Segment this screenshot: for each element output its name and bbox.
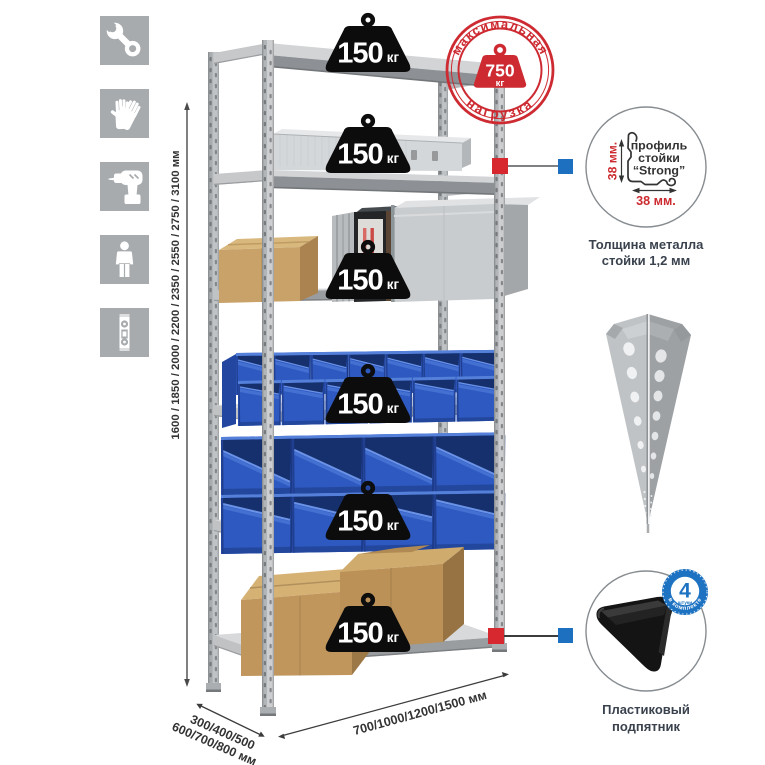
svg-text:подпятник: подпятник (612, 719, 681, 734)
svg-text:38 мм.: 38 мм. (636, 194, 676, 208)
svg-text:стойки 1,2 мм: стойки 1,2 мм (602, 253, 690, 268)
svg-text:кг: кг (387, 630, 400, 645)
svg-text:“Strong”: “Strong” (633, 164, 685, 178)
svg-text:150: 150 (337, 389, 382, 421)
svg-text:кг: кг (387, 401, 400, 416)
svg-text:1600 / 1850 / 2000 / 2200 / 23: 1600 / 1850 / 2000 / 2200 / 2350 / 2550 … (170, 150, 182, 439)
svg-text:150: 150 (337, 139, 382, 171)
svg-text:кг: кг (496, 78, 505, 89)
svg-text:150: 150 (337, 506, 382, 538)
svg-text:4: 4 (679, 580, 691, 603)
svg-text:150: 150 (337, 618, 382, 650)
svg-text:кг: кг (387, 50, 400, 65)
svg-text:150: 150 (337, 38, 382, 70)
svg-text:150: 150 (337, 265, 382, 297)
svg-text:кг: кг (387, 277, 400, 292)
svg-text:кг: кг (387, 151, 400, 166)
svg-text:Толщина металла: Толщина металла (589, 237, 704, 252)
svg-text:38 мм.: 38 мм. (606, 142, 620, 180)
svg-text:кг: кг (387, 518, 400, 533)
svg-text:Пластиковый: Пластиковый (602, 702, 690, 717)
